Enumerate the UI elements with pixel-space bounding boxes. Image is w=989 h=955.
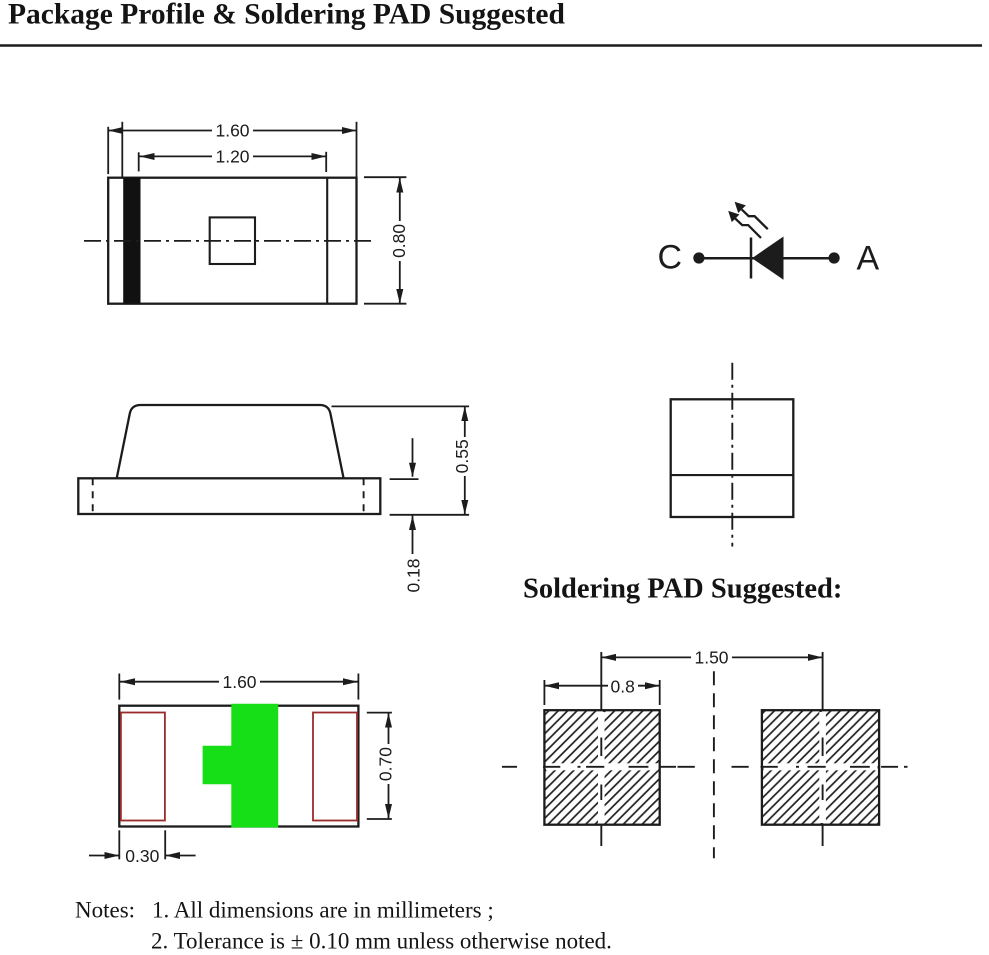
svg-text:C: C [658,239,683,277]
svg-text:Soldering PAD Suggested:: Soldering PAD Suggested: [523,574,842,605]
svg-text:0.55: 0.55 [452,439,472,473]
svg-text:1. All dimensions are in milli: 1. All dimensions are in millimeters ; [152,898,494,923]
svg-text:A: A [857,240,880,278]
svg-text:0.80: 0.80 [389,224,409,258]
svg-text:1.50: 1.50 [694,648,728,668]
svg-text:Notes:: Notes: [75,898,135,923]
svg-text:2. Tolerance is ± 0.10 mm unle: 2. Tolerance is ± 0.10 mm unless otherwi… [151,928,612,953]
svg-text:0.8: 0.8 [611,676,635,696]
svg-text:1.20: 1.20 [215,147,249,167]
svg-text:0.18: 0.18 [404,558,424,592]
svg-text:Package Profile & Soldering PA: Package Profile & Soldering PAD Suggeste… [8,0,565,31]
svg-text:0.30: 0.30 [125,846,159,866]
svg-text:1.60: 1.60 [215,121,249,141]
svg-text:1.60: 1.60 [222,672,256,692]
svg-text:0.70: 0.70 [376,747,396,781]
